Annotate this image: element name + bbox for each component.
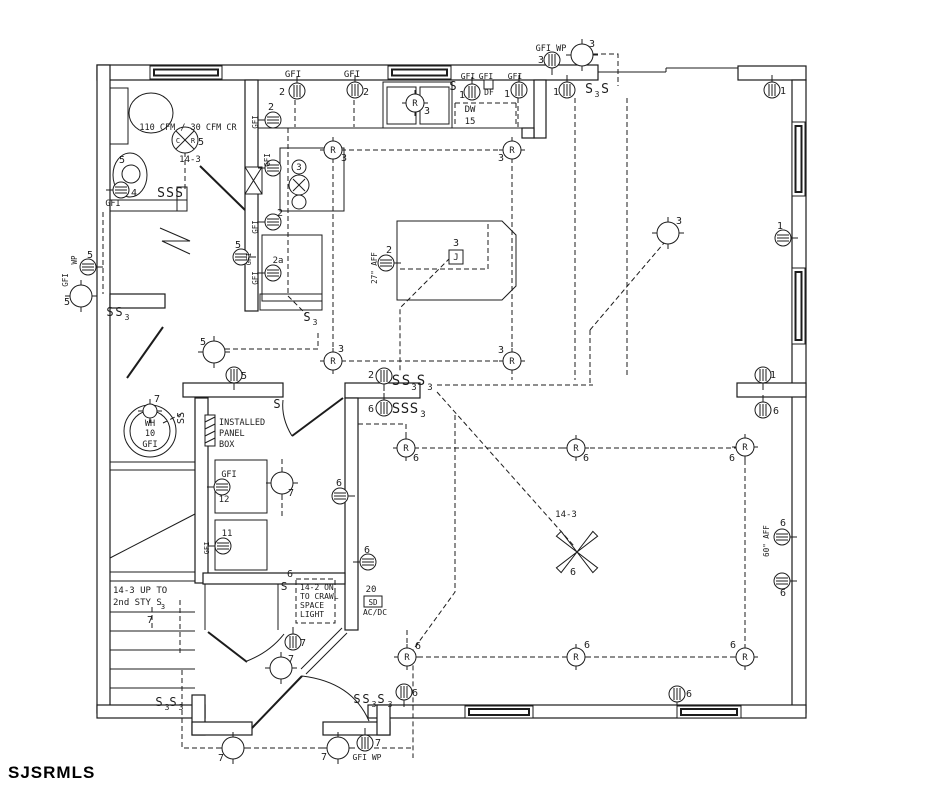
plan-label: 14-3 UP TO [113,586,167,596]
plan-label: 6 [773,406,779,417]
window [792,268,805,344]
light-body [222,737,244,759]
wiring-run [437,392,574,546]
plan-label: 5 [241,371,247,382]
rlight-letter: R [573,444,579,454]
plan-label: 1 [777,221,783,232]
rlight-letter: R [403,444,409,454]
plan-label: GFI [221,470,236,480]
fixture [110,200,187,211]
detail-line [110,514,195,558]
plan-label: 2nd STY S [113,598,162,608]
receptacle-symbol [258,112,281,128]
plan-label: 14-2 ON [300,583,334,592]
wall [345,398,358,630]
plan-label: 6 [583,453,589,464]
plan-label: 3 [538,55,544,66]
receptacle-symbol [285,627,301,650]
wiring-run [225,332,318,349]
plan-label: S [449,79,456,93]
plan-label: 5 [200,337,206,348]
plan-label: GFI [61,273,70,287]
plan-label: 14-3 [555,510,577,520]
plan-label: 6 [287,569,293,580]
wiring-run [400,258,450,372]
plan-label: SS [176,412,187,424]
plan-label: 3 [498,153,504,164]
plan-label: 2 [268,102,274,113]
plan-label: 1 [504,89,510,100]
plan-label: 6 [570,567,576,578]
fixture-circle [292,195,306,209]
plan-label: GFI WP [536,44,567,54]
rlight-letter: R [742,653,748,663]
plan-label: LIGHT [300,610,324,619]
plan-label: 3 [296,163,301,173]
recessed-light-symbol: R [732,434,758,460]
plan-label: S [392,373,400,389]
plan-label: 7 [300,638,306,649]
plan-label: 5 [198,137,204,148]
plan-label: WP [70,255,79,265]
plan-label: 3 [372,700,377,709]
plan-label: GFI [251,271,260,285]
plan-label: 20 [366,585,377,595]
plan-label: 7 [154,394,160,405]
plan-label: 3 [161,603,165,611]
wall [97,705,205,718]
plan-label: GFI [142,440,157,450]
plan-label: 60" AFF [762,525,771,557]
junction-box-symbol: J [449,250,463,264]
fan-blade [556,531,577,552]
floor-plan-page: RRRRRRRRRRRCRJSDGFI WP33GFI2GFI2GFIGFIGF… [0,0,939,788]
plan-label: GFI [263,153,272,167]
floor-plan-drawing: RRRRRRRRRRRCRJSDGFI WP33GFI2GFI2GFIGFIGF… [0,0,939,788]
plan-label: S [362,692,369,706]
wall [522,128,534,138]
plan-label: BOX [219,440,235,450]
fanlight-letter: C [176,137,180,145]
plan-label: 5 [119,155,125,166]
plan-label: 3 [313,318,318,327]
door-leaf [200,166,245,210]
wall [377,705,390,735]
receptacle-symbol [258,265,281,281]
plan-label: GFI [203,542,211,555]
plan-label: 6 [413,453,419,464]
plan-label: 3 [676,216,682,227]
plan-label: GFI [251,220,260,234]
plan-label: 4 [131,188,137,199]
door-leaf [208,632,247,662]
detail-line [306,633,347,674]
plan-label: AC/DC [363,608,387,617]
plan-label: WH [145,419,155,429]
plan-label: 2 [368,370,374,381]
fixture [260,294,322,310]
plan-label: GFI [105,199,120,209]
plan-label: S [273,397,280,411]
plan-label: S [115,305,122,319]
light-body [327,737,349,759]
wall [183,383,283,397]
rlight-letter: R [509,357,515,367]
plan-label: 3 [498,345,504,356]
plan-label: 6 [730,640,736,651]
plan-label: 12 [219,495,230,505]
plan-label: 3 [595,90,600,99]
plan-label: S [157,186,165,201]
plan-label: GFI [461,72,476,81]
plan-label: S [585,82,593,97]
plan-label: 6 [336,478,342,489]
plan-label: S [155,695,162,709]
plan-label: 3 [338,344,344,355]
light-body [203,341,225,363]
rlight-letter: R [509,146,515,156]
plan-label: 6 [368,404,374,415]
plan-label: 5 [87,250,93,261]
rlight-letter: R [404,653,410,663]
receptacle-symbol [208,538,231,554]
plan-label: 3 [420,410,425,420]
plan-label: TO CRAWL [300,592,339,601]
plan-label: 6 [686,689,692,700]
fixture [110,88,128,144]
plan-label: 3 [453,238,459,249]
fan-blade [577,552,598,573]
plan-label: S [377,692,384,706]
plan-label: S [601,82,609,97]
plan-label: 5 [64,297,70,308]
plan-label: 2 [386,245,392,256]
jbox-letter: J [453,253,458,263]
plan-label: 7 [288,654,294,665]
rlight-letter: R [742,443,748,453]
wall [737,383,806,397]
plan-label: 3 [125,313,130,322]
plan-label: 11 [222,529,233,539]
plan-label: 1 [553,87,559,98]
receptacle-symbol [378,255,401,271]
wall [534,80,546,138]
plan-label: S [175,186,183,201]
plan-label: 10 [145,429,155,439]
plan-label: 7 [288,488,294,499]
window [677,706,741,718]
plan-label: 6 [412,688,418,699]
window [792,122,805,196]
plan-label: S [417,373,425,389]
light-body [143,404,157,418]
light-body [70,285,92,307]
plan-label: SPACE [300,601,324,610]
plan-label: 7 [218,753,224,764]
plan-label: 7 [375,738,381,749]
wall [192,722,252,735]
closet-rod [160,228,190,254]
watermark: SJSRMLS [8,763,95,783]
plan-label: GFI [344,70,360,80]
window [388,66,451,79]
plan-label: GFI [508,72,523,81]
plan-label: GFI WP [353,753,382,762]
door-leaf [292,398,343,436]
plan-label: 3 [424,106,430,117]
plan-label: 7 [321,752,327,763]
plan-label: 6 [780,518,786,529]
plan-label: 14-3 [179,155,201,165]
plan-label: 5 [235,240,241,251]
fan-blade [577,531,598,552]
door-leaf [127,327,163,378]
labels-layer: GFI WP33GFI2GFI2GFIGFIGFI111DFSDW153S3S1… [61,39,786,764]
plan-label: S [401,401,409,417]
ceiling-fan-symbol [556,531,597,572]
symbols-layer: RRRRRRRRRRRCRJSD [65,39,798,764]
plan-label: 1 [459,90,465,101]
plan-label: DF [484,88,494,97]
door-leaf [252,676,302,728]
receptacle-symbol [755,395,771,418]
plan-label: 7 [147,615,153,626]
plan-label: GFI [245,253,253,266]
plan-label: S [169,695,176,709]
wall [97,65,110,713]
wiring-run [400,224,488,269]
plan-label: 1 [780,86,786,97]
plan-label: 6 [584,640,590,651]
plan-label: 6 [780,588,786,599]
plan-label: 15 [465,117,476,127]
plan-label: S [410,401,418,417]
wiring-run [288,128,306,314]
plan-label: INSTALLED [219,418,265,428]
plan-label: 3 [589,39,595,50]
sd-letters: SD [368,598,378,607]
plan-label: S [166,186,174,201]
walls-layer [97,65,806,735]
plan-label: 27" AFF [370,252,379,284]
plan-label: 2 [277,208,283,219]
plan-label: 6 [415,641,421,652]
detail-line [301,628,342,669]
plan-label: S [106,305,113,319]
receptacle-symbol [396,684,412,707]
plan-label: S [353,692,360,706]
plan-label: 2a [273,256,284,266]
rlight-letter: R [412,99,418,109]
plan-label: 2 [363,87,369,98]
fixture-circle [122,165,140,183]
plan-label: DW [465,105,476,115]
window [465,706,533,718]
plan-label: PANEL [219,429,245,439]
door-swing-arc [283,400,292,436]
receptacle-symbol [207,479,230,495]
plan-label: S [402,373,410,389]
smoke-detector-symbol: SD [364,596,382,607]
plan-label: GFI [479,72,494,81]
plan-label: 3 [388,700,393,709]
plan-label: GFI [285,70,301,80]
plan-label: 3 [179,703,184,712]
plan-label: 2 [279,87,285,98]
rlight-letter: R [330,357,336,367]
plan-label: 3 [341,153,347,164]
plan-label: S [281,580,288,593]
window [150,66,222,79]
plan-label: GFI [251,115,260,129]
plan-label: 6 [729,453,735,464]
plan-label: 6 [364,545,370,556]
plan-label: 1 [770,370,776,381]
plan-label: 110 CFM / 30 CFM CR [139,123,237,133]
rlight-letter: R [330,146,336,156]
plan-label: S [392,401,400,417]
plan-label: S [303,310,310,324]
plan-label: 3 [427,383,432,393]
rlight-letter: R [573,653,579,663]
